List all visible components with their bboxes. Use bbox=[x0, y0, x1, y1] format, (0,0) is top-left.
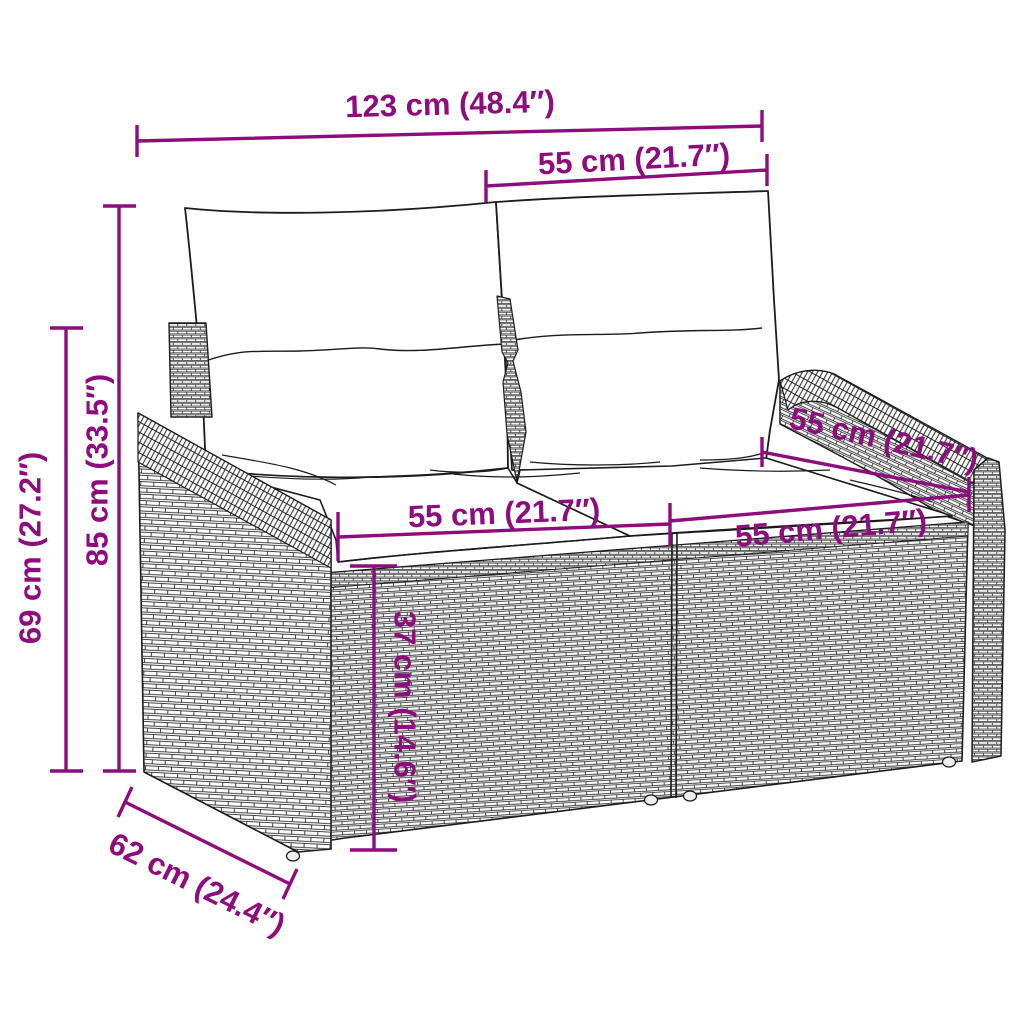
svg-text:85 cm (33.5″): 85 cm (33.5″) bbox=[80, 374, 115, 566]
svg-text:69 cm (27.2″): 69 cm (27.2″) bbox=[13, 452, 48, 644]
svg-text:37 cm (14.6″): 37 cm (14.6″) bbox=[388, 611, 423, 803]
svg-text:123 cm (48.4″): 123 cm (48.4″) bbox=[345, 84, 555, 124]
